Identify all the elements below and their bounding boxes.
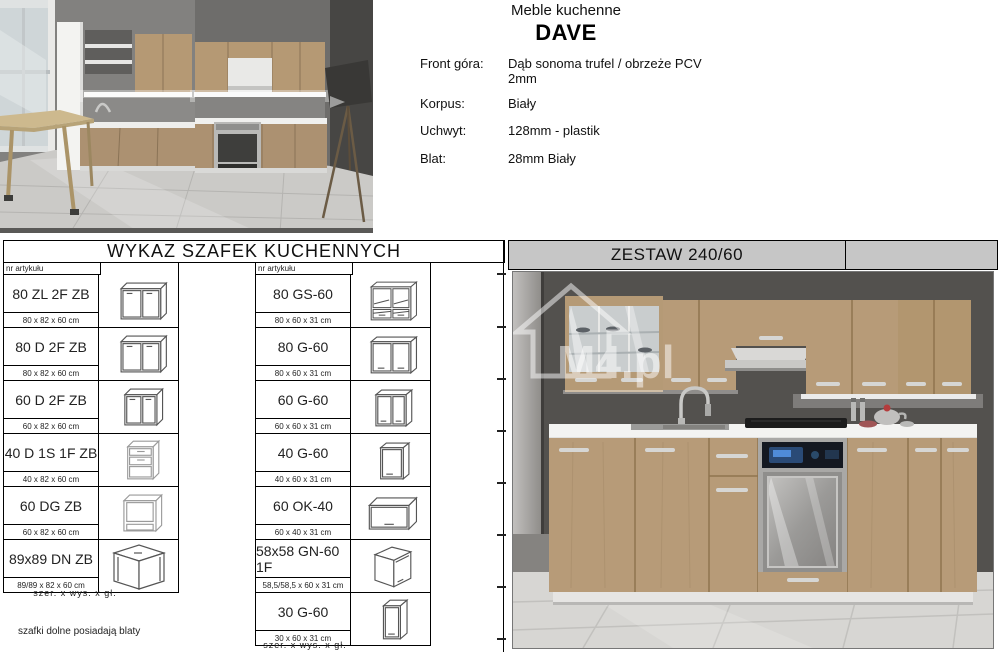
cabinet-row: 80 D 2F ZB 80 x 82 x 60 cm [4, 328, 178, 381]
spec-label: Front góra: [420, 56, 508, 86]
set-render-graphic: M4.pl [513, 272, 993, 648]
cabinet-row: 60 D 2F ZB 60 x 82 x 60 cm [4, 381, 178, 434]
catalog-page: Meble kuchenne DAVE Front góra: Dąb sono… [0, 0, 1000, 654]
cabinet-dims: 80 x 60 x 31 cm [256, 365, 351, 380]
table-title: WYKAZ SZAFEK KUCHENNYCH [3, 240, 505, 263]
cabinet-dims: 80 x 82 x 60 cm [4, 312, 99, 327]
spec-label: Korpus: [420, 96, 508, 111]
cabinet-code: 60 OK-40 [256, 487, 351, 524]
cabinet-icon-base-2door [99, 328, 178, 380]
cabinet-dims: 40 x 82 x 60 cm [4, 471, 99, 486]
right-cabinet-run [190, 42, 330, 173]
left-cabinet-run [57, 22, 197, 171]
spec-row-korpus: Korpus: Biały [420, 96, 712, 111]
spec-row-uchwyt: Uchwyt: 128mm - plastik [420, 123, 712, 138]
cooktop [745, 418, 847, 428]
row-tick [497, 273, 506, 275]
spec-label: Uchwyt: [420, 123, 508, 138]
set-panel: ZESTAW 240/60 [508, 240, 998, 650]
wall-cabinets-column: nr artykułu 80 GS-60 80 x 60 x 31 cm 80 … [255, 263, 431, 646]
oven [758, 438, 847, 592]
cabinet-icon-base-2door [99, 381, 178, 433]
set-render: M4.pl [512, 271, 994, 649]
row-tick [497, 378, 506, 380]
cabinet-icon-wall-flipup [351, 487, 430, 539]
row-tick [497, 534, 506, 536]
dimension-legend: szer. x wys. x gł. [5, 588, 145, 598]
cabinet-dims: 60 x 82 x 60 cm [4, 524, 99, 539]
cabinet-icon-base-drawer-door [99, 434, 178, 486]
row-tick [497, 430, 506, 432]
column-header: nr artykułu [256, 263, 353, 275]
cabinet-dims: 80 x 82 x 60 cm [4, 365, 99, 380]
cabinet-code: 40 G-60 [256, 434, 351, 471]
cabinet-code: 60 DG ZB [4, 487, 99, 524]
set-title: ZESTAW 240/60 [509, 241, 845, 269]
cabinet-icon-base-corner [99, 540, 178, 592]
spec-value: Biały [508, 96, 712, 111]
cabinet-row: 60 G-60 60 x 60 x 31 cm [256, 381, 430, 434]
cabinet-dims: 58,5/58,5 x 60 x 31 cm [256, 577, 351, 592]
cabinet-dims: 40 x 60 x 31 cm [256, 471, 351, 486]
cabinet-table: WYKAZ SZAFEK KUCHENNYCH nr artykułu 80 Z… [3, 240, 505, 652]
cabinet-icon-base-oven-open [99, 487, 178, 539]
cabinet-row: 80 ZL 2F ZB 80 x 82 x 60 cm [4, 275, 178, 328]
cabinet-code: 89x89 DN ZB [4, 540, 99, 577]
row-tick [497, 638, 506, 640]
cabinet-code: 40 D 1S 1F ZB [4, 434, 99, 471]
cabinet-dims: 60 x 40 x 31 cm [256, 524, 351, 539]
dimension-legend: szer. x wys. x gł. [235, 640, 375, 650]
cabinet-row: 40 G-60 40 x 60 x 31 cm [256, 434, 430, 487]
base-cabinets-column: nr artykułu 80 ZL 2F ZB 80 x 82 x 60 cm … [3, 263, 179, 593]
cabinet-icon-wall-corner [351, 540, 430, 592]
cabinet-row: 58x58 GN-60 1F 58,5/58,5 x 60 x 31 cm [256, 540, 430, 593]
spec-row-blat: Blat: 28mm Biały [420, 151, 712, 166]
cabinet-icon-wall-1door [351, 434, 430, 486]
spec-value: 128mm - plastik [508, 123, 712, 138]
cabinet-dims: 80 x 60 x 31 cm [256, 312, 351, 327]
cabinet-dims: 60 x 82 x 60 cm [4, 418, 99, 433]
product-specs: Meble kuchenne DAVE Front góra: Dąb sono… [420, 2, 712, 166]
cabinet-row: 30 G-60 30 x 60 x 31 cm [256, 593, 430, 646]
table-footnote: szafki dolne posiadają blaty [18, 626, 140, 637]
cabinet-row: 80 G-60 80 x 60 x 31 cm [256, 328, 430, 381]
base-cabinets [549, 438, 977, 592]
cabinet-row: 60 OK-40 60 x 40 x 31 cm [256, 487, 430, 540]
cabinet-code: 60 G-60 [256, 381, 351, 418]
row-tick [497, 586, 506, 588]
cabinet-dims: 60 x 60 x 31 cm [256, 418, 351, 433]
cabinet-code: 80 GS-60 [256, 275, 351, 312]
row-tick [497, 482, 506, 484]
product-category: Meble kuchenne [420, 2, 712, 19]
row-tick [497, 326, 506, 328]
cabinet-icon-wall-1door-narrow [351, 593, 430, 645]
cabinet-code: 80 D 2F ZB [4, 328, 99, 365]
watermark-text: M4.pl [557, 336, 675, 388]
stove [214, 122, 261, 170]
cabinet-row: 80 GS-60 80 x 60 x 31 cm [256, 275, 430, 328]
cabinet-row: 60 DG ZB 60 x 82 x 60 cm [4, 487, 178, 540]
spec-value: 28mm Biały [508, 151, 712, 166]
spec-row-front: Front góra: Dąb sonoma trufel / obrzeże … [420, 56, 712, 86]
header-divider [845, 241, 846, 269]
cabinet-code: 80 ZL 2F ZB [4, 275, 99, 312]
cabinet-code: 80 G-60 [256, 328, 351, 365]
cabinet-icon-wall-2door [351, 381, 430, 433]
cabinet-code: 60 D 2F ZB [4, 381, 99, 418]
cabinet-code: 58x58 GN-60 1F [256, 540, 351, 577]
column-header: nr artykułu [4, 263, 101, 275]
cabinet-icon-wall-2door [351, 328, 430, 380]
cooker-hood [725, 348, 817, 371]
set-header: ZESTAW 240/60 [508, 240, 998, 270]
cabinet-row: 40 D 1S 1F ZB 40 x 82 x 60 cm [4, 434, 178, 487]
product-name: DAVE [420, 20, 712, 46]
cabinet-code: 30 G-60 [256, 593, 351, 630]
cabinet-icon-wall-glass-drawers [351, 275, 430, 327]
spec-label: Blat: [420, 151, 508, 166]
table-right-rule [503, 240, 504, 652]
spec-value: Dąb sonoma trufel / obrzeże PCV 2mm [508, 56, 712, 86]
cabinet-row: 89x89 DN ZB 89/89 x 82 x 60 cm [4, 540, 178, 593]
kitchen-photo-graphic [0, 0, 373, 233]
cabinet-icon-base-2door [99, 275, 178, 327]
kitchen-photo [0, 0, 373, 233]
